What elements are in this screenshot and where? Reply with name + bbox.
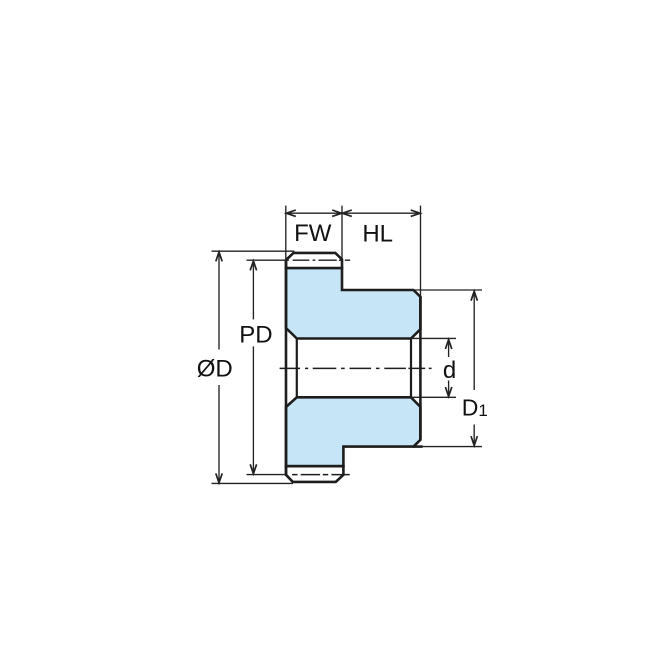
- svg-text:HL: HL: [362, 220, 393, 247]
- svg-text:FW: FW: [294, 220, 332, 247]
- svg-text:d: d: [443, 357, 456, 384]
- svg-text:ØD: ØD: [197, 356, 233, 383]
- svg-text:PD: PD: [239, 322, 272, 349]
